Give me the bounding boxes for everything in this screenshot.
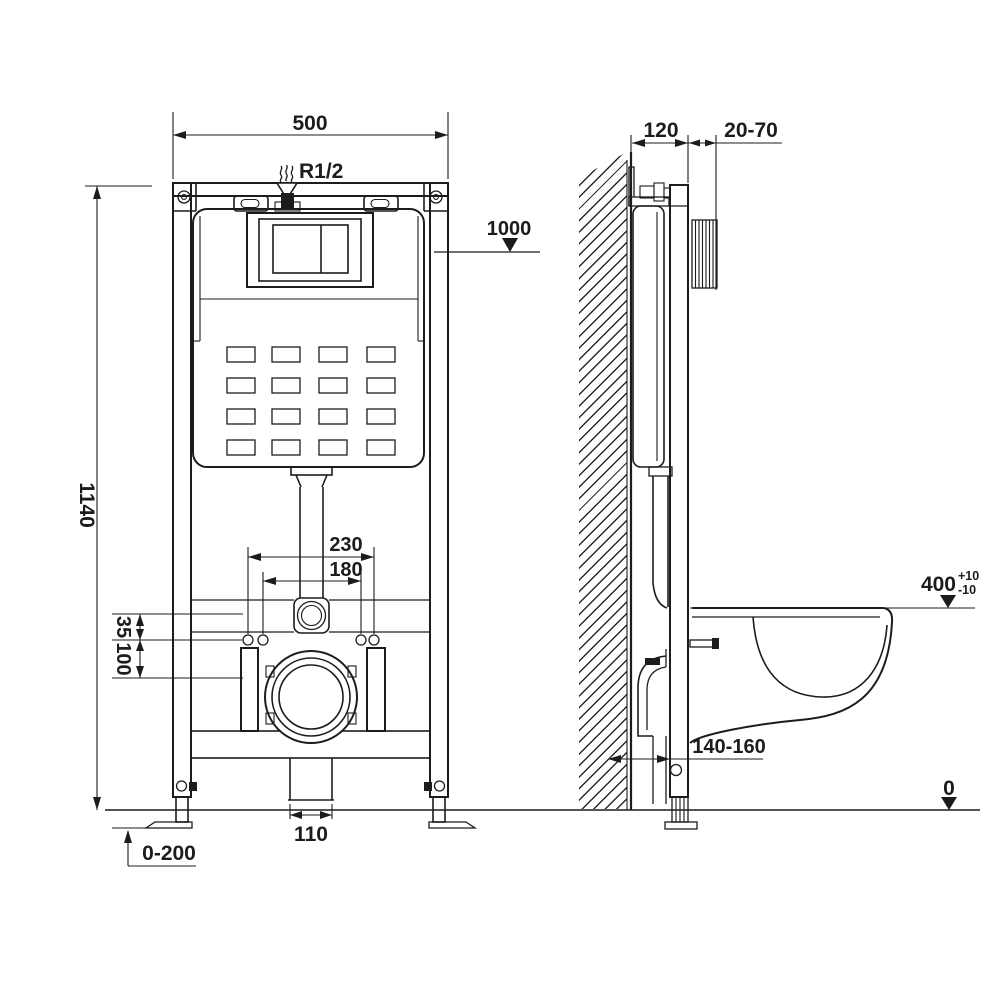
level-triangle-icon [941,797,957,810]
rod-holes [243,635,379,645]
top-wall-bracket [629,167,670,206]
level-marker-floor: 0 [941,777,957,810]
drain-elbow-side [638,649,666,804]
front-view: R1/2 [75,112,540,866]
dim-35-label: 35 [112,616,134,638]
threaded-rod [690,638,719,649]
cistern-side [633,206,664,467]
dim-height: 1140 [75,186,152,810]
side-view: 120 20-70 [608,119,979,829]
dim-left-offsets: 35 100 [112,614,243,678]
dim-depth: 120 [631,119,688,183]
toilet-frame-dimension-drawing: R1/2 [0,0,1000,1000]
flush-plate-front [247,213,373,287]
dim-wall-offset-label: 20-70 [724,119,778,142]
flush-buttons [273,225,348,273]
toilet-bowl-profile [690,608,975,743]
bowl-height-tol-minus: -10 [958,583,976,597]
dim-depth-label: 120 [643,119,678,142]
dim-height-label: 1140 [75,482,98,528]
water-inlet-symbol: R1/2 [275,160,343,211]
dim-drain-width-label: 110 [294,823,328,846]
technical-drawing-canvas: R1/2 [0,0,1000,1000]
floor-level-label: 0 [943,777,955,800]
dim-bowl-height-label: 400 [921,573,956,596]
adjustable-foot-left [146,781,197,828]
cistern-front [193,209,424,467]
flush-pipe-front [291,467,332,598]
mounting-bracket [241,648,258,731]
level-1000-label: 1000 [487,218,532,240]
flush-plate-side [692,220,717,288]
bowl-height-tol-plus: +10 [958,569,979,583]
inlet-elbow [294,598,329,633]
drain-stub-front [288,758,334,800]
level-triangle-icon [502,238,518,252]
dim-drain-offset-label: 140-160 [692,736,765,758]
dim-100-label: 100 [112,642,134,675]
cistern-grid-pattern [227,347,395,455]
inlet-fitting [281,193,294,208]
level-marker-1000: 1000 [434,218,540,252]
level-marker-400: 400 +10 -10 [921,569,979,608]
dim-rod-inner-label: 180 [329,559,362,581]
dim-rod-outer-label: 230 [329,534,362,556]
flush-pipe-side [649,467,672,608]
adjustable-foot-right [424,781,475,828]
waste-outlet-front [265,651,357,743]
frame-rail-side [670,185,688,797]
dim-foot-adjust: 0-200 [112,828,196,866]
level-triangle-icon [940,595,956,608]
mounting-bracket [367,648,385,731]
inlet-size-label: R1/2 [299,160,343,183]
dim-width-label: 500 [292,112,327,135]
dim-foot-adjust-label: 0-200 [142,842,196,865]
